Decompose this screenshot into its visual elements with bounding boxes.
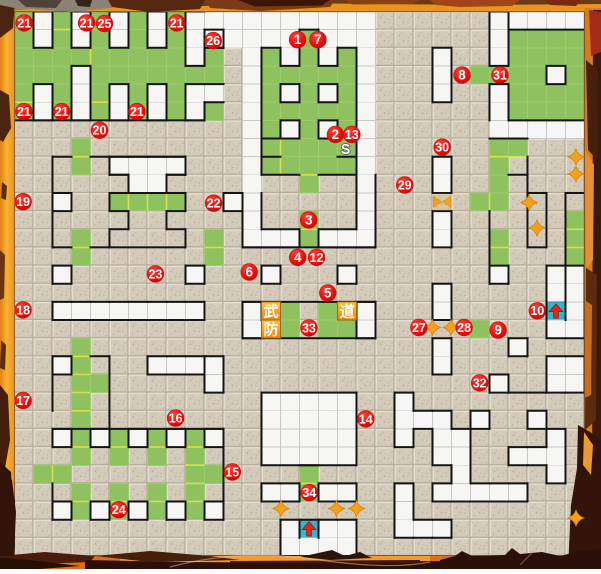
svg-text:21: 21: [17, 16, 31, 30]
svg-text:15: 15: [225, 465, 239, 479]
svg-text:18: 18: [16, 303, 30, 317]
svg-text:21: 21: [55, 105, 69, 119]
svg-text:防: 防: [263, 321, 278, 339]
svg-text:34: 34: [302, 486, 316, 500]
svg-text:道: 道: [339, 303, 354, 321]
svg-text:30: 30: [435, 141, 449, 155]
svg-text:31: 31: [493, 69, 507, 83]
svg-text:21: 21: [130, 105, 144, 119]
svg-text:24: 24: [112, 503, 126, 517]
svg-text:17: 17: [16, 394, 30, 408]
svg-text:12: 12: [310, 251, 324, 265]
svg-text:22: 22: [207, 197, 221, 211]
svg-text:4: 4: [294, 250, 302, 265]
svg-text:S: S: [341, 142, 351, 158]
svg-text:10: 10: [530, 304, 544, 318]
svg-text:武: 武: [263, 303, 278, 321]
svg-text:21: 21: [170, 16, 184, 30]
svg-text:13: 13: [345, 128, 359, 142]
svg-text:32: 32: [473, 376, 487, 390]
svg-text:21: 21: [80, 16, 94, 30]
svg-text:2: 2: [332, 127, 340, 142]
svg-text:9: 9: [494, 323, 502, 338]
svg-text:16: 16: [169, 412, 183, 426]
svg-text:20: 20: [93, 124, 107, 138]
svg-text:19: 19: [16, 195, 30, 209]
svg-text:7: 7: [314, 32, 322, 47]
svg-text:27: 27: [412, 321, 426, 335]
svg-text:28: 28: [457, 321, 471, 335]
svg-text:26: 26: [206, 34, 220, 48]
svg-text:29: 29: [398, 178, 412, 192]
svg-text:3: 3: [305, 212, 313, 227]
svg-text:21: 21: [17, 105, 31, 119]
svg-text:6: 6: [245, 264, 253, 279]
svg-text:33: 33: [302, 321, 316, 335]
svg-text:1: 1: [294, 32, 302, 47]
svg-text:5: 5: [324, 285, 332, 300]
svg-text:8: 8: [458, 68, 466, 83]
svg-text:14: 14: [359, 412, 373, 426]
svg-text:23: 23: [148, 267, 162, 281]
svg-text:25: 25: [98, 17, 112, 31]
